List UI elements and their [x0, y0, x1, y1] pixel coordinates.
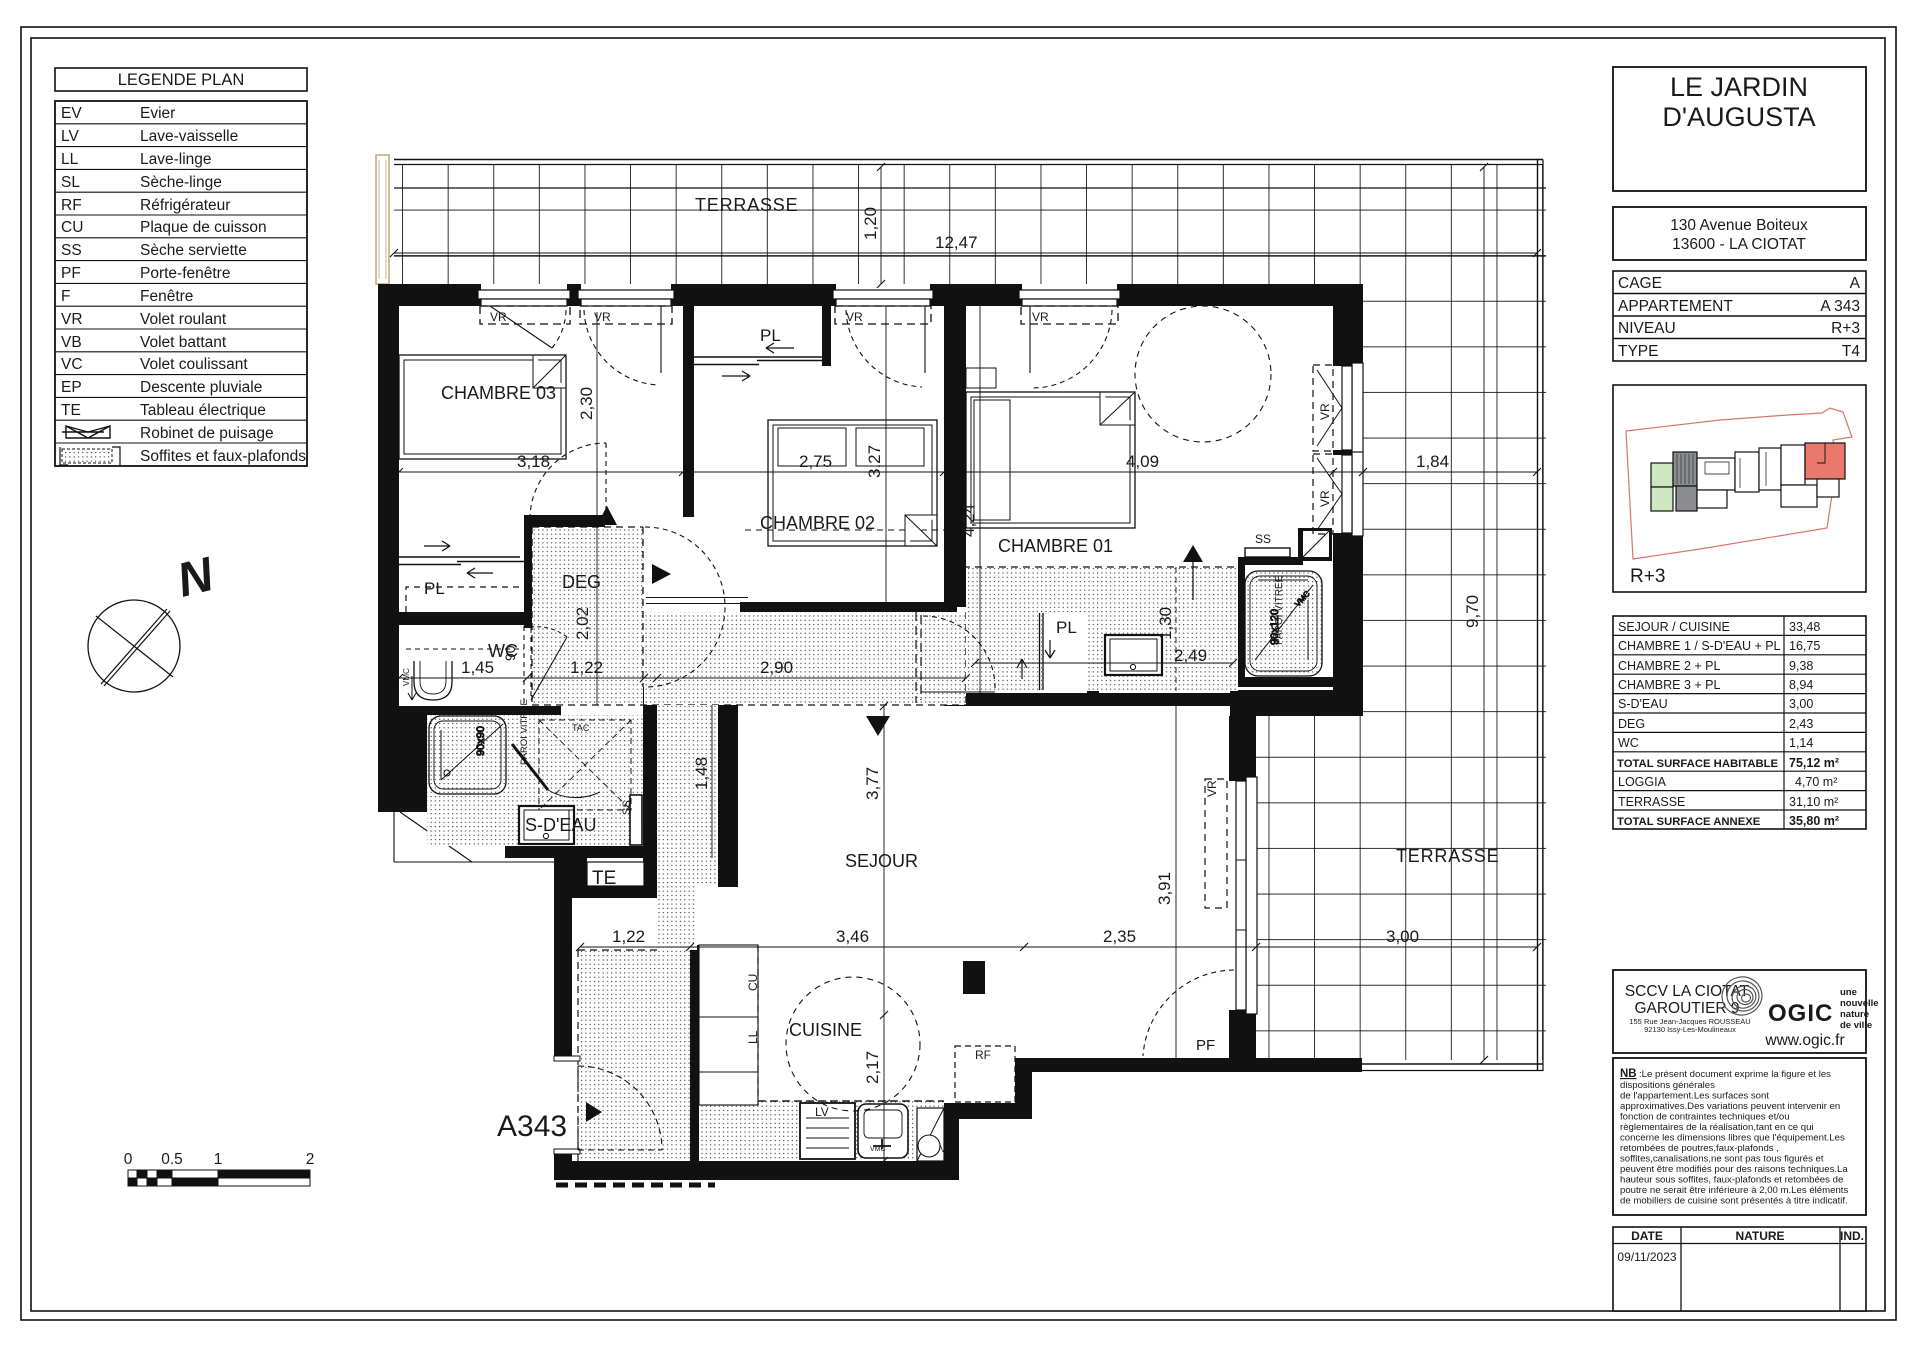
svg-text:CAGE: CAGE [1618, 275, 1662, 292]
svg-text:1,84: 1,84 [1416, 452, 1449, 471]
svg-text::Le présent document exprime l: :Le présent document exprime la figure e… [1639, 1069, 1831, 1080]
svg-text:1,22: 1,22 [570, 658, 603, 677]
svg-text:peuvent être modifiés pour des: peuvent être modifiés pour des raisons t… [1620, 1164, 1848, 1175]
svg-text:1,48: 1,48 [692, 757, 711, 790]
svg-text:3,46: 3,46 [836, 927, 869, 946]
svg-text:Soffites et faux-plafonds: Soffites et faux-plafonds [140, 448, 306, 465]
svg-text:2,30: 2,30 [577, 387, 596, 420]
svg-text:Porte-fenêtre: Porte-fenêtre [140, 265, 230, 282]
svg-text:0: 0 [124, 1151, 133, 1168]
svg-text:SS: SS [61, 242, 82, 259]
svg-text:EV: EV [61, 105, 82, 122]
svg-text:Descente pluviale: Descente pluviale [140, 379, 262, 396]
svg-text:PAROI VITREE: PAROI VITREE [1274, 575, 1285, 645]
svg-text:1,30: 1,30 [1156, 607, 1175, 640]
svg-text:3,77: 3,77 [863, 767, 882, 800]
svg-text:TE: TE [592, 868, 616, 889]
svg-text:T4: T4 [1842, 343, 1860, 360]
svg-text:2,02: 2,02 [573, 607, 592, 640]
svg-text:CHAMBRE 3 + PL: CHAMBRE 3 + PL [1618, 678, 1721, 692]
svg-text:F: F [61, 288, 70, 305]
svg-text:2: 2 [306, 1151, 315, 1168]
svg-text:4,24: 4,24 [959, 504, 978, 537]
svg-text:2,75: 2,75 [799, 452, 832, 471]
svg-text:31,10 m²: 31,10 m² [1789, 795, 1838, 809]
svg-text:NB: NB [1620, 1068, 1637, 1080]
svg-text:75,12 m²: 75,12 m² [1789, 756, 1839, 770]
svg-text:CUISINE: CUISINE [789, 1020, 862, 1040]
svg-text:VMC: VMC [402, 668, 411, 686]
svg-text:SS: SS [1255, 532, 1271, 546]
svg-text:PL: PL [1056, 618, 1077, 637]
svg-text:PL: PL [424, 579, 445, 598]
svg-text:SL: SL [61, 174, 80, 191]
svg-text:APPARTEMENT: APPARTEMENT [1618, 298, 1733, 315]
svg-text:PL: PL [760, 326, 781, 345]
svg-text:LE JARDIN: LE JARDIN [1670, 72, 1808, 102]
svg-text:LV: LV [815, 1105, 829, 1119]
svg-text:CU: CU [61, 219, 83, 236]
svg-text:PF: PF [1196, 1037, 1215, 1054]
svg-text:VMC: VMC [870, 1146, 886, 1153]
svg-text:Volet roulant: Volet roulant [140, 311, 227, 328]
svg-text:VC: VC [61, 356, 83, 373]
svg-text:DEG: DEG [562, 572, 601, 592]
svg-text:Robinet de puisage: Robinet de puisage [140, 425, 274, 442]
svg-text:Tableau électrique: Tableau électrique [140, 402, 266, 419]
svg-text:LV: LV [61, 128, 79, 145]
svg-text:Volet coulissant: Volet coulissant [140, 356, 248, 373]
svg-text:TOTAL SURFACE HABITABLE: TOTAL SURFACE HABITABLE [1617, 758, 1779, 770]
svg-text:Sèche serviette: Sèche serviette [140, 242, 247, 259]
svg-text:1,14: 1,14 [1789, 736, 1813, 750]
svg-text:OGIC: OGIC [1768, 1000, 1833, 1027]
svg-text:A 343: A 343 [1820, 298, 1860, 315]
svg-text:CHAMBRE 2 + PL: CHAMBRE 2 + PL [1618, 659, 1721, 673]
svg-text:D'AUGUSTA: D'AUGUSTA [1662, 102, 1815, 132]
svg-text:PF: PF [61, 265, 81, 282]
svg-text:Lave-vaisselle: Lave-vaisselle [140, 128, 238, 145]
svg-text:Fenêtre: Fenêtre [140, 288, 193, 305]
svg-text:Evier: Evier [140, 105, 175, 122]
svg-text:www.ogic.fr: www.ogic.fr [1764, 1032, 1844, 1049]
svg-text:35,80 m²: 35,80 m² [1789, 814, 1839, 828]
svg-text:3,00: 3,00 [1789, 697, 1813, 711]
svg-text:une: une [1840, 987, 1857, 998]
svg-text:CHAMBRE 02: CHAMBRE 02 [760, 513, 875, 533]
svg-text:règlementaires de la réalisati: règlementaires de la réalisation,tant en… [1620, 1122, 1814, 1133]
svg-text:1,22: 1,22 [612, 927, 645, 946]
svg-text:RF: RF [975, 1048, 991, 1062]
svg-text:2,90: 2,90 [760, 658, 793, 677]
svg-text:VR: VR [846, 310, 863, 324]
svg-text:soffites,canalisations,ne sont: soffites,canalisations,ne sont pas tous … [1620, 1154, 1824, 1165]
svg-text:de mobiliers de cuisine sont p: de mobiliers de cuisine sont présentés à… [1620, 1196, 1848, 1207]
svg-text:33,48: 33,48 [1789, 620, 1820, 634]
svg-text:3,18: 3,18 [517, 452, 550, 471]
svg-text:Sèche-linge: Sèche-linge [140, 174, 222, 191]
svg-text:TERRASSE: TERRASSE [695, 195, 798, 215]
svg-text:VR: VR [1032, 310, 1049, 324]
svg-text:TYPE: TYPE [1618, 343, 1658, 360]
svg-text:4,09: 4,09 [1126, 452, 1159, 471]
svg-text:Réfrigérateur: Réfrigérateur [140, 197, 230, 214]
svg-text:R+3: R+3 [1831, 320, 1860, 337]
svg-text:A: A [1850, 275, 1861, 292]
svg-text:TERRASSE: TERRASSE [1618, 795, 1685, 809]
svg-text:poutre ne serait être inférieu: poutre ne serait être inférieure à 2,00 … [1620, 1185, 1848, 1196]
svg-text:TOTAL SURFACE ANNEXE: TOTAL SURFACE ANNEXE [1617, 816, 1761, 828]
svg-text:90: 90 [502, 645, 518, 661]
svg-text:3,91: 3,91 [1155, 872, 1174, 905]
svg-text:NATURE: NATURE [1735, 1229, 1784, 1243]
svg-text:approximatives.Des variations: approximatives.Des variations peuvent in… [1620, 1101, 1840, 1112]
svg-text:1: 1 [214, 1151, 223, 1168]
svg-text:CHAMBRE 1 / S-D'EAU + PL: CHAMBRE 1 / S-D'EAU + PL [1618, 639, 1781, 653]
svg-text:09/11/2023: 09/11/2023 [1617, 1250, 1676, 1264]
svg-text:hauteur sous soffites, faux-pl: hauteur sous soffites, faux-plafonds et … [1620, 1175, 1843, 1186]
svg-text:GAROUTIER 9: GAROUTIER 9 [1634, 1000, 1739, 1017]
svg-text:2,43: 2,43 [1789, 717, 1813, 731]
svg-text:0.5: 0.5 [161, 1151, 183, 1168]
svg-text:VR: VR [1318, 403, 1332, 420]
svg-text:DEG: DEG [1618, 717, 1645, 731]
svg-text:nouvelle: nouvelle [1840, 998, 1879, 1009]
svg-text:concerne les dimensions libres: concerne les dimensions libres que l'équ… [1620, 1133, 1845, 1144]
svg-text:9,38: 9,38 [1789, 659, 1813, 673]
svg-text:Lave-linge: Lave-linge [140, 151, 212, 168]
svg-text:16,75: 16,75 [1789, 639, 1820, 653]
svg-text:S-D'EAU: S-D'EAU [525, 815, 596, 835]
svg-text:90x90: 90x90 [475, 726, 487, 756]
svg-text:92130 Issy-Les-Moulineaux: 92130 Issy-Les-Moulineaux [1644, 1025, 1736, 1034]
svg-text:Plaque de cuisson: Plaque de cuisson [140, 219, 267, 236]
svg-text:Volet battant: Volet battant [140, 334, 227, 351]
svg-text:1,20: 1,20 [861, 207, 880, 240]
svg-text:CHAMBRE 01: CHAMBRE 01 [998, 536, 1113, 556]
svg-text:LEGENDE PLAN: LEGENDE PLAN [118, 71, 245, 89]
svg-text:2,35: 2,35 [1103, 927, 1136, 946]
svg-text:1,45: 1,45 [461, 658, 494, 677]
svg-text:CHAMBRE 03: CHAMBRE 03 [441, 383, 556, 403]
svg-text:3,27: 3,27 [865, 445, 884, 478]
svg-text:CU: CU [746, 974, 760, 991]
svg-text:9,70: 9,70 [1463, 595, 1482, 628]
svg-text:4,70 m²: 4,70 m² [1795, 775, 1837, 789]
svg-text:13600 - LA CIOTAT: 13600 - LA CIOTAT [1672, 236, 1806, 253]
svg-text:SEJOUR: SEJOUR [845, 851, 918, 871]
svg-text:LL: LL [746, 1030, 760, 1044]
svg-text:NIVEAU: NIVEAU [1618, 320, 1676, 337]
svg-text:PAROI VITREE: PAROI VITREE [519, 699, 530, 765]
svg-text:RF: RF [61, 197, 82, 214]
svg-text:VR: VR [61, 311, 83, 328]
svg-text:LL: LL [61, 151, 79, 168]
svg-text:S-D'EAU: S-D'EAU [1618, 697, 1668, 711]
svg-text:TE: TE [61, 402, 81, 419]
svg-text:WC: WC [1618, 736, 1639, 750]
svg-text:VB: VB [61, 334, 82, 351]
svg-text:R+3: R+3 [1630, 566, 1665, 587]
svg-text:EP: EP [61, 379, 82, 396]
svg-text:VR: VR [1318, 490, 1332, 507]
svg-text:2,49: 2,49 [1174, 646, 1207, 665]
svg-text:8,94: 8,94 [1789, 678, 1813, 692]
svg-text:12,47: 12,47 [935, 233, 978, 252]
svg-text:nature: nature [1840, 1009, 1869, 1020]
svg-text:IND.: IND. [1840, 1229, 1864, 1243]
svg-text:3,00: 3,00 [1386, 927, 1419, 946]
svg-text:retombées de poutres,faux-plaf: retombées de poutres,faux-plafonds , [1620, 1143, 1779, 1154]
svg-text:2,17: 2,17 [863, 1051, 882, 1084]
svg-text:A343: A343 [497, 1110, 567, 1143]
svg-text:dispositions générales: dispositions générales [1620, 1080, 1715, 1091]
svg-text:fonction de contraintes techni: fonction de contraintes techniques et/ou [1620, 1112, 1790, 1123]
svg-text:de l'appartement.Les surfaces: de l'appartement.Les surfaces sont [1620, 1091, 1769, 1102]
svg-text:130 Avenue Boiteux: 130 Avenue Boiteux [1670, 217, 1808, 234]
svg-text:V: V [940, 1144, 946, 1154]
svg-text:SEJOUR / CUISINE: SEJOUR / CUISINE [1618, 620, 1730, 634]
svg-text:de ville: de ville [1840, 1020, 1872, 1031]
svg-text:TAC: TAC [572, 723, 590, 733]
svg-text:LOGGIA: LOGGIA [1618, 775, 1667, 789]
svg-text:VR: VR [1205, 780, 1219, 797]
svg-text:DATE: DATE [1631, 1229, 1663, 1243]
